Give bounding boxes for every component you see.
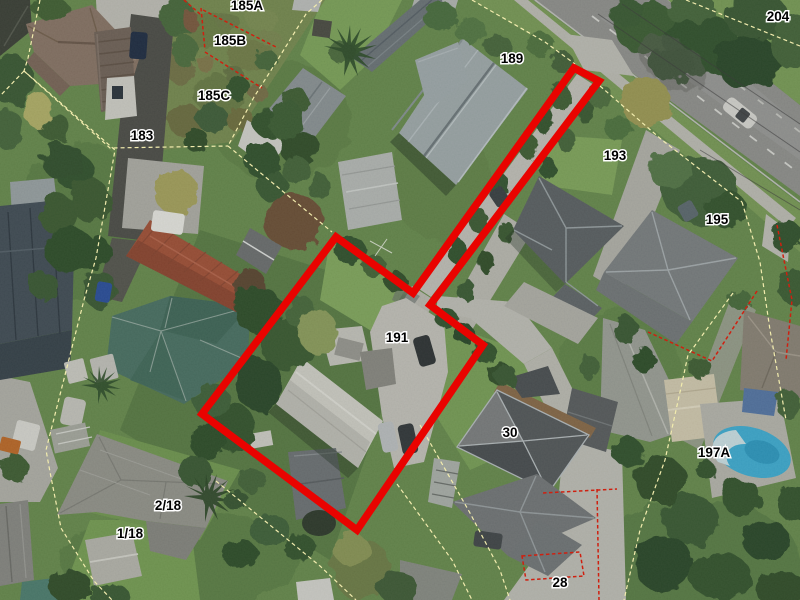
svg-text:189: 189	[501, 51, 524, 66]
svg-text:1/18: 1/18	[117, 526, 144, 541]
svg-text:185A: 185A	[231, 0, 264, 13]
svg-text:185C: 185C	[198, 88, 231, 103]
svg-text:195: 195	[706, 212, 729, 227]
svg-text:204: 204	[767, 9, 790, 24]
svg-text:28: 28	[552, 575, 568, 590]
svg-text:2/18: 2/18	[155, 498, 182, 513]
svg-text:197A: 197A	[698, 445, 731, 460]
svg-text:30: 30	[502, 425, 517, 440]
svg-text:183: 183	[131, 128, 154, 143]
svg-text:193: 193	[604, 148, 627, 163]
svg-text:191: 191	[386, 330, 409, 345]
svg-text:185B: 185B	[214, 33, 247, 48]
